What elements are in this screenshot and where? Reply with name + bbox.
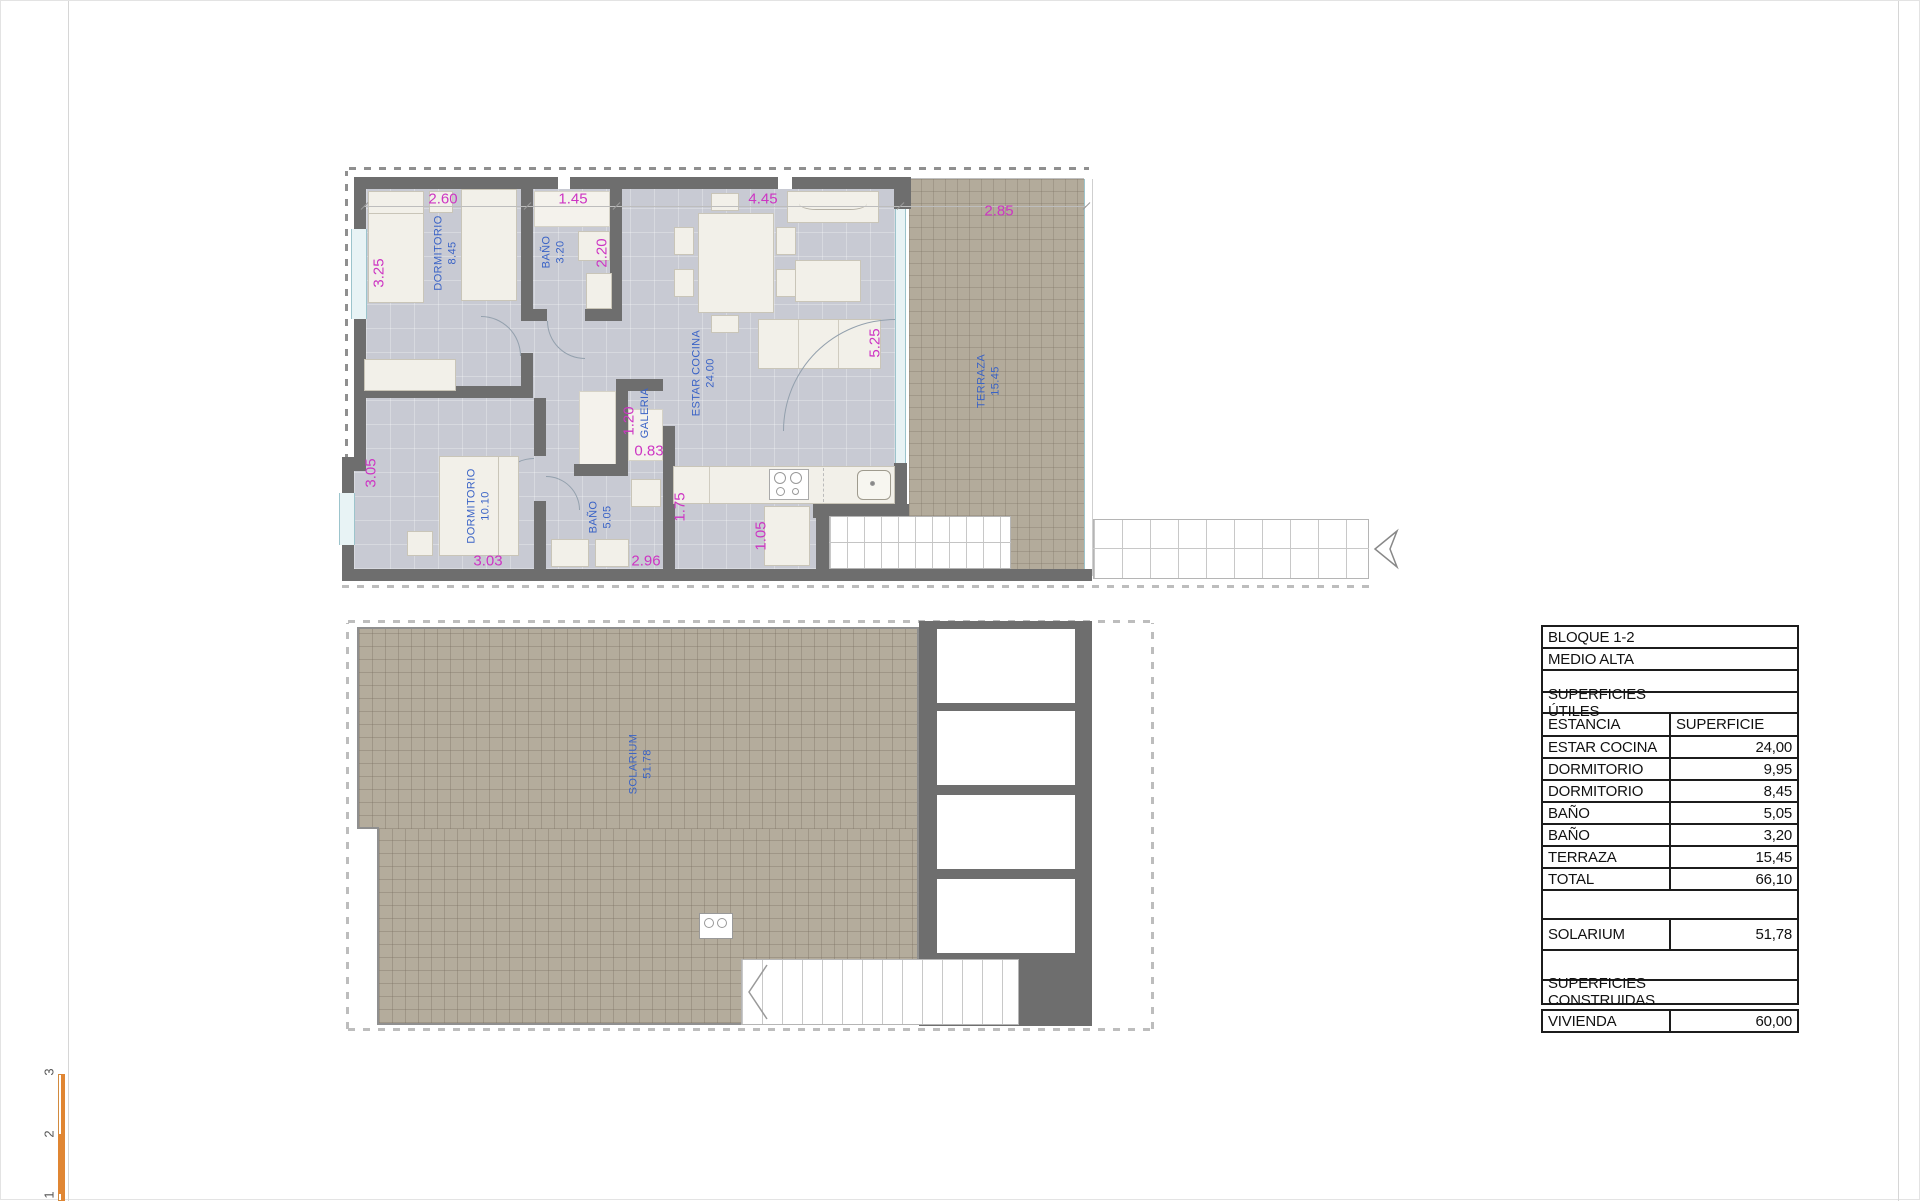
- terrace-top-edge: [909, 178, 1084, 179]
- wall-bedroom2-right-a: [534, 398, 546, 456]
- room-area: 5.05: [601, 506, 613, 529]
- room-area: 51.78: [641, 749, 653, 779]
- table-cell: SOLARIUM: [1543, 920, 1669, 949]
- sheet-margin-line-left: [68, 1, 69, 1201]
- room-area: 3.20: [554, 241, 566, 264]
- room-name: TERRAZA: [975, 354, 987, 408]
- solarium-stair: [741, 959, 1019, 1025]
- wall-left-upper: [354, 177, 366, 469]
- wall-top: [354, 177, 906, 189]
- sheet-margin-line-right: [1898, 1, 1899, 1201]
- solarium-dash-left: [346, 623, 349, 1029]
- sideboard-curve: [799, 197, 867, 210]
- walkway-direction-arrow-icon: [1371, 527, 1401, 571]
- solarium-notch-edge: [357, 827, 379, 829]
- pergola-opening-3: [937, 795, 1075, 869]
- plan-outline-dash-bottom: [342, 585, 1372, 588]
- plan-sheet: { "page": { "type": "architectural-floor…: [0, 0, 1920, 1200]
- table-cell: VIVIENDA: [1543, 1011, 1669, 1031]
- table-row-bano-1: BAÑO 5,05: [1541, 801, 1799, 825]
- room-label-dormitorio-2: DORMITORIO 10.10: [465, 468, 493, 543]
- table-cell: 9,95: [1669, 759, 1797, 779]
- table-row-vivienda: VIVIENDA 60,00: [1541, 1009, 1799, 1033]
- scale-label-2: 2: [42, 1130, 57, 1137]
- room-name: BAÑO: [587, 501, 599, 534]
- rooflight-dome: [717, 918, 727, 928]
- table-cell: BAÑO: [1543, 825, 1669, 845]
- table-cell: DORMITORIO: [1543, 781, 1669, 801]
- rooflight-dome: [704, 918, 714, 928]
- solarium-dash-bottom: [348, 1028, 1154, 1031]
- table-cell: 66,10: [1669, 869, 1797, 889]
- window-bedroom1: [351, 229, 367, 319]
- table-cell: DORMITORIO: [1543, 759, 1669, 779]
- chair: [674, 227, 694, 255]
- table-row-medio-alta: MEDIO ALTA: [1541, 647, 1799, 671]
- table-row-empty: [1541, 889, 1799, 920]
- wall-top-joint-1: [558, 177, 570, 189]
- table-cell: 5,05: [1669, 803, 1797, 823]
- room-label-estar-cocina: ESTAR COCINA 24.00: [690, 330, 718, 417]
- table-row-bloque: BLOQUE 1-2: [1541, 625, 1799, 649]
- dim-3-25: 3.25: [371, 258, 388, 287]
- wall-bath1-bottom-b: [585, 309, 622, 321]
- dim-4-45: 4.45: [748, 191, 777, 208]
- room-name: DORMITORIO: [465, 468, 477, 543]
- dim-2-20: 2.20: [594, 238, 611, 267]
- window-living-terrace: [895, 209, 906, 463]
- room-label-solarium: SOLARIUM 51.78: [627, 734, 655, 795]
- pergola-opening-1: [937, 629, 1075, 703]
- dining-table: [698, 213, 774, 313]
- dim-1-05: 1.05: [753, 521, 770, 550]
- counter-seam: [709, 467, 710, 503]
- table-cell: 15,45: [1669, 847, 1797, 867]
- wall-bath2-top: [574, 464, 628, 476]
- wall-stair-left: [816, 504, 829, 569]
- room-name: ESTAR COCINA: [690, 330, 702, 417]
- solarium-stair-arrow-icon: [743, 961, 773, 1023]
- table-cell: MEDIO ALTA: [1543, 649, 1669, 669]
- table-row-solarium: SOLARIUM 51,78: [1541, 918, 1799, 951]
- table-cell: 60,00: [1669, 1011, 1797, 1031]
- dim-5-25: 5.25: [867, 328, 884, 357]
- scale-label-3: 3: [42, 1068, 57, 1075]
- table-cell: [1543, 891, 1669, 918]
- coffee-table: [795, 260, 861, 302]
- pergola-opening-2: [937, 711, 1075, 785]
- solarium-dash-right: [1151, 623, 1154, 1029]
- table-cell: 24,00: [1669, 737, 1797, 757]
- dim-1-45: 1.45: [558, 191, 587, 208]
- table-cell: SUPERFICIES CONSTRUIDAS: [1543, 981, 1669, 1003]
- scale-label-1: 1: [42, 1191, 57, 1198]
- dim-3-03: 3.03: [473, 553, 502, 570]
- chair: [776, 269, 796, 297]
- table-cell: TERRAZA: [1543, 847, 1669, 867]
- access-walkway-stairs: [1093, 519, 1369, 579]
- room-area: 15.45: [989, 366, 1001, 396]
- table-cell: SUPERFICIE: [1669, 714, 1797, 735]
- room-area: 8.45: [446, 241, 458, 264]
- table-cell: ESTAR COCINA: [1543, 737, 1669, 757]
- room-name: GALERIA: [639, 388, 651, 439]
- table-row-bano-2: BAÑO 3,20: [1541, 823, 1799, 847]
- table-row-terraza: TERRAZA 15,45: [1541, 845, 1799, 869]
- wall-bath1-bottom-a: [521, 309, 547, 321]
- bath2-toilet: [595, 539, 629, 567]
- room-name: BAÑO: [540, 236, 552, 269]
- wall-bedroom2-right-b: [534, 501, 546, 569]
- hall-closet: [579, 391, 616, 474]
- room-label-galeria: GALERIA: [639, 388, 653, 439]
- scale-bar-segment: [58, 1134, 65, 1194]
- chair: [674, 269, 694, 297]
- washer: [764, 506, 810, 566]
- stair-midline: [829, 542, 1011, 543]
- dresser-bedroom1: [364, 359, 456, 391]
- bath1-toilet: [586, 273, 612, 309]
- table-row-dormitorio-1: DORMITORIO 9,95: [1541, 757, 1799, 781]
- room-label-terraza: TERRAZA 15.45: [975, 354, 1003, 408]
- dim-2-96: 2.96: [631, 553, 660, 570]
- table-row-superficies-utiles: SUPERFICIES ÚTILES: [1541, 691, 1799, 714]
- table-row-total: TOTAL 66,10: [1541, 867, 1799, 891]
- room-name: SOLARIUM: [627, 734, 639, 795]
- table-row-column-headers: ESTANCIA SUPERFICIE: [1541, 712, 1799, 737]
- dimension-line-top: [364, 206, 1086, 207]
- nightstand-2: [407, 531, 433, 556]
- table-cell: 51,78: [1669, 920, 1797, 949]
- chair: [711, 193, 739, 211]
- table-cell: 8,45: [1669, 781, 1797, 801]
- dim-2-60: 2.60: [428, 191, 457, 208]
- room-area: 10.10: [479, 491, 491, 521]
- faucet: [870, 481, 875, 486]
- bed-2-pillow-line: [498, 457, 499, 555]
- scale-bar-segment: [61, 1074, 65, 1134]
- dim-0-83: 0.83: [634, 443, 663, 460]
- dim-1-20: 1.20: [621, 406, 638, 435]
- pergola-opening-4: [937, 879, 1075, 953]
- wall-top-joint-2: [778, 177, 792, 189]
- wall-bottom: [342, 569, 1092, 581]
- table-cell: ESTANCIA: [1543, 714, 1669, 735]
- dishwasher-divider: [823, 468, 824, 502]
- table-cell: SUPERFICIES ÚTILES: [1543, 693, 1669, 712]
- bath2-bidet: [551, 539, 589, 567]
- solarium-floor-upper: [357, 627, 919, 829]
- window-bedroom2: [339, 493, 355, 545]
- dim-3-05: 3.05: [363, 458, 380, 487]
- chair: [776, 227, 796, 255]
- table-cell: TOTAL: [1543, 869, 1669, 889]
- dim-2-85: 2.85: [984, 203, 1013, 220]
- walkway-midline: [1093, 548, 1369, 549]
- room-label-bano-2: BAÑO 5.05: [587, 501, 615, 534]
- plan-outline-dash-top: [349, 167, 1089, 170]
- room-area: 24.00: [704, 358, 716, 388]
- bath2-basin: [631, 479, 661, 507]
- sofa-seam: [798, 320, 799, 368]
- burner: [774, 472, 786, 484]
- burner: [776, 487, 785, 496]
- summary-table: BLOQUE 1-2 MEDIO ALTA SUPERFICIES ÚTILES…: [1541, 625, 1799, 1033]
- table-cell: BAÑO: [1543, 803, 1669, 823]
- bed-1-pillow-line: [369, 213, 423, 214]
- table-cell: 3,20: [1669, 825, 1797, 845]
- burner: [790, 472, 802, 484]
- room-label-dormitorio-1: DORMITORIO 8.45: [432, 215, 460, 290]
- table-row-dormitorio-2: DORMITORIO 8,45: [1541, 779, 1799, 803]
- room-label-bano-1: BAÑO 3.20: [540, 236, 568, 269]
- table-cell: BLOQUE 1-2: [1543, 627, 1669, 647]
- burner: [792, 488, 799, 495]
- table-row-estar-cocina: ESTAR COCINA 24,00: [1541, 735, 1799, 759]
- dim-1-75: 1.75: [672, 492, 689, 521]
- terrace-railing: [1084, 179, 1093, 576]
- table-row-superficies-construidas: SUPERFICIES CONSTRUIDAS: [1541, 979, 1799, 1005]
- room-name: DORMITORIO: [432, 215, 444, 290]
